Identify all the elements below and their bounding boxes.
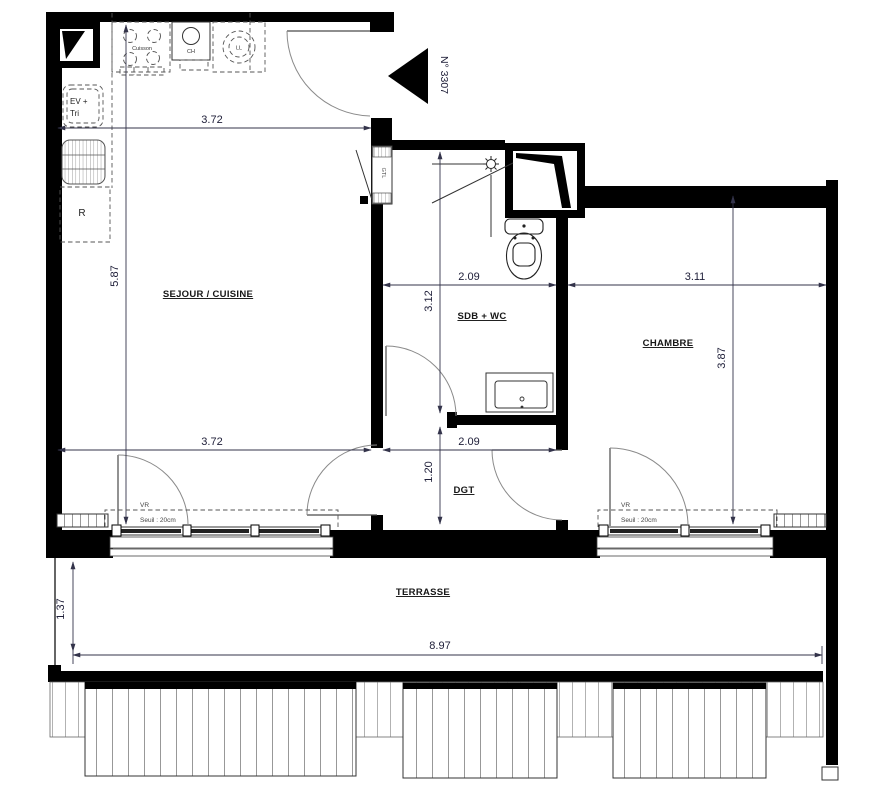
door-swing-arc xyxy=(287,31,370,116)
chambre-window-door xyxy=(610,448,688,526)
chambre-window xyxy=(597,525,773,556)
entry-door xyxy=(287,31,370,116)
dim-terrasse-depth: 1.37 xyxy=(55,598,67,619)
room-label-sdb: SDB + WC xyxy=(457,311,506,322)
burner-icon xyxy=(124,30,137,43)
dim-dgt-width: 2.09 xyxy=(458,436,479,448)
threshold-strip-right xyxy=(774,514,826,527)
dim-chambre-height: 3.87 xyxy=(716,347,728,368)
window-sill xyxy=(110,549,333,556)
ev-label-line2: Tri xyxy=(70,109,79,118)
door-swing-arc xyxy=(118,455,188,525)
dim-chambre-width: 3.11 xyxy=(685,271,706,283)
drawer-row xyxy=(120,67,164,75)
glazing-bar xyxy=(259,529,319,533)
top-wall xyxy=(46,12,394,22)
glazing-bar xyxy=(191,529,249,533)
duct-shaft-top-left xyxy=(53,22,100,68)
terrace-slab-edge xyxy=(48,671,823,682)
burner-icon xyxy=(148,30,161,43)
bottom-wall-left xyxy=(46,530,113,558)
mullion xyxy=(761,525,770,536)
window-sill xyxy=(110,537,333,548)
sdb-left-wall-jamb xyxy=(371,515,383,530)
dim-sejour-height: 5.87 xyxy=(109,265,121,286)
room-label-chambre: CHAMBRE xyxy=(643,338,694,349)
room-label-terrasse: TERRASSE xyxy=(396,587,450,598)
water-heater: CH xyxy=(172,22,210,70)
floor-plan-drawing: Cuisson CH LL EV + Tri xyxy=(0,0,874,800)
glazing-bar xyxy=(610,529,678,533)
dim-terrasse-width: 8.97 xyxy=(429,640,450,652)
railing-top-bar xyxy=(85,682,356,689)
left-wall xyxy=(46,12,62,530)
dim-dgt-height: 1.20 xyxy=(423,461,435,482)
exterior-walls xyxy=(46,12,838,765)
threshold-strip-left xyxy=(57,514,108,527)
toilet-hinge xyxy=(532,237,535,240)
gtl-hatch xyxy=(373,147,391,157)
room-label-sejour: SEJOUR / CUISINE xyxy=(163,289,253,300)
railing-panel-3 xyxy=(613,683,766,778)
room-label-dgt: DGT xyxy=(454,485,475,496)
ev-label-line1: EV + xyxy=(70,97,88,106)
water-heater-label: CH xyxy=(187,49,195,55)
bottom-wall-middle xyxy=(330,530,600,558)
railing-top-bar xyxy=(403,683,557,689)
toilet-bowl xyxy=(507,233,542,279)
unit-triangle-icon xyxy=(388,48,428,104)
toilet xyxy=(505,219,543,279)
dim-sejour-width-top: 3.72 xyxy=(201,114,222,126)
dim-sdb-height: 3.12 xyxy=(423,290,435,311)
gtl-label: GTL xyxy=(380,168,386,179)
sink-tri-unit: EV + Tri xyxy=(63,85,103,127)
dimension-lines: 3.72 5.87 3.72 2.09 3.12 2.09 1.20 3.11 … xyxy=(55,25,826,664)
sink-drainer xyxy=(62,140,105,184)
chambre-door-jamb xyxy=(556,520,568,530)
gtl-hatch xyxy=(373,193,391,203)
railing-slats xyxy=(85,682,356,776)
glazing-bar xyxy=(121,529,181,533)
terrace-step xyxy=(822,767,838,780)
shower-diagonal xyxy=(432,163,513,203)
mullion xyxy=(112,525,121,536)
window-sill xyxy=(597,549,773,556)
vanity-counter xyxy=(486,373,553,412)
gtl-door-block xyxy=(360,196,368,204)
seuil-label: Seuil : 20cm xyxy=(621,517,657,524)
dim-sejour-width-bottom: 3.72 xyxy=(201,436,222,448)
entry-door-jamb xyxy=(370,12,394,32)
toilet-seat xyxy=(513,243,535,266)
gtl-cabinet: GTL xyxy=(356,146,392,204)
toilet-button xyxy=(522,224,525,227)
water-heater-base xyxy=(180,60,208,70)
cooktop: Cuisson xyxy=(112,22,170,75)
mullion xyxy=(183,525,191,536)
sdb-door xyxy=(386,346,456,416)
mullion xyxy=(599,525,608,536)
duct-shaft-entry xyxy=(505,143,585,218)
sejour-window xyxy=(110,525,333,556)
entry-wall-stub xyxy=(371,118,392,143)
door-swing-arc xyxy=(492,450,562,520)
right-wall xyxy=(826,180,838,765)
refrigerator: R xyxy=(60,187,110,242)
sdb-chambre-wall xyxy=(556,212,568,450)
refrigerator-label: R xyxy=(78,208,85,219)
floor-plan-page: Cuisson CH LL EV + Tri xyxy=(0,0,874,800)
chambre-door xyxy=(492,450,562,520)
mullion xyxy=(251,525,259,536)
water-heater-icon xyxy=(183,28,200,45)
railing-top-bar xyxy=(613,683,766,689)
faucet-icon xyxy=(521,406,524,409)
sejour-window-door xyxy=(118,455,188,525)
mullion xyxy=(321,525,330,536)
mullion xyxy=(681,525,689,536)
window-sill xyxy=(597,537,773,548)
railing-slats xyxy=(403,683,557,778)
drain-icon xyxy=(520,397,524,401)
vr-annotation-left: VR Seuil : 20cm xyxy=(105,502,338,527)
washing-machine: LL xyxy=(213,22,265,72)
vr-label: VR xyxy=(140,502,149,509)
sdb-bottom-wall xyxy=(455,415,568,425)
drainer-hatch xyxy=(62,140,105,184)
ev-tri-outline xyxy=(63,85,103,127)
vanity-sink xyxy=(486,373,553,412)
shower xyxy=(432,156,513,237)
glazing-bar xyxy=(690,529,758,533)
unit-marker: N° 3307 xyxy=(388,48,450,104)
door-swing-arc xyxy=(610,448,688,526)
cooktop-label: Cuisson xyxy=(132,46,152,52)
dim-sdb-width: 2.09 xyxy=(458,271,479,283)
unit-number: N° 3307 xyxy=(438,56,450,94)
toilet-hinge xyxy=(514,237,517,240)
washing-machine-label: LL xyxy=(236,46,242,52)
door-swing-arc xyxy=(307,445,377,515)
railing-panel-1 xyxy=(85,682,356,776)
vr-label: VR xyxy=(621,502,630,509)
railing-panel-2 xyxy=(403,683,557,778)
railing-slats xyxy=(613,683,766,778)
vanity-basin xyxy=(495,381,547,408)
door-swing-arc xyxy=(386,346,456,416)
chambre-top-wall xyxy=(585,186,838,208)
gtl-door-line xyxy=(356,150,372,200)
burner-icon xyxy=(124,53,137,66)
sejour-dgt-door xyxy=(307,445,377,515)
seuil-label: Seuil : 20cm xyxy=(140,517,176,524)
burner-icon xyxy=(147,52,160,65)
shower-head-icon xyxy=(483,156,499,172)
